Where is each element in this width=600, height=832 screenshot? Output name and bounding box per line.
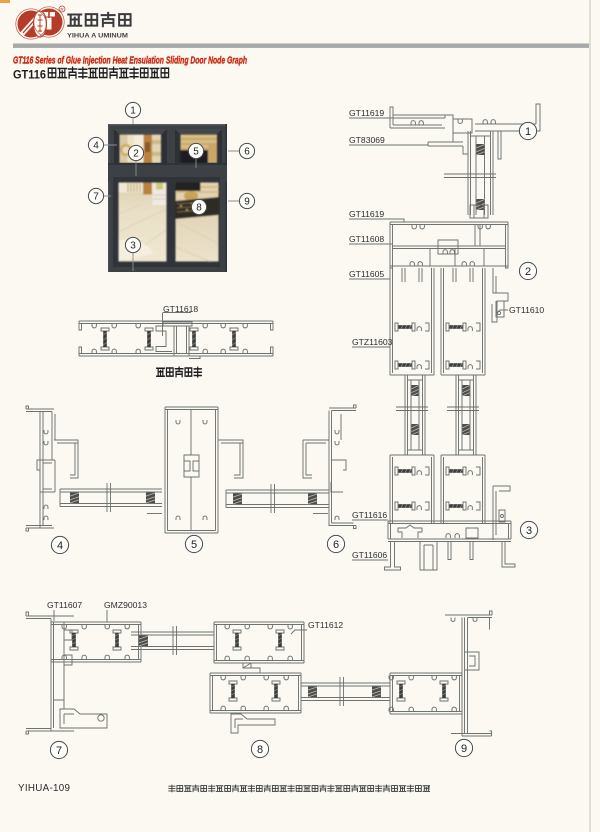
svg-text:GMZ90013: GMZ90013 — [104, 600, 147, 610]
svg-text:5: 5 — [191, 539, 197, 551]
svg-text:GT11619: GT11619 — [349, 209, 384, 219]
svg-text:GT116: GT116 — [13, 68, 46, 82]
svg-text:7: 7 — [56, 745, 62, 757]
svg-text:YIHUA-109: YIHUA-109 — [18, 783, 70, 794]
svg-text:GT11619: GT11619 — [349, 108, 384, 118]
svg-text:2: 2 — [133, 149, 139, 160]
svg-text:GT83069: GT83069 — [349, 135, 385, 145]
svg-text:7: 7 — [93, 192, 99, 203]
svg-text:!: ! — [428, 785, 430, 794]
svg-text:1: 1 — [130, 106, 136, 117]
svg-text:GT116 Series of Glue Injection: GT116 Series of Glue Injection Heat Ensu… — [13, 56, 247, 67]
svg-text:8: 8 — [196, 203, 202, 214]
svg-text:GT11610: GT11610 — [509, 305, 544, 315]
svg-text:3: 3 — [526, 525, 532, 537]
svg-text:1: 1 — [525, 126, 531, 138]
svg-text:YIHUA A UMINUM: YIHUA A UMINUM — [67, 33, 128, 40]
svg-text:2: 2 — [525, 266, 531, 278]
svg-text:GT11612: GT11612 — [308, 620, 343, 630]
svg-text:GT11605: GT11605 — [349, 269, 384, 279]
svg-text:GT11616: GT11616 — [352, 510, 387, 520]
svg-text:4: 4 — [57, 540, 63, 552]
svg-text:5: 5 — [193, 147, 199, 158]
svg-text:GT11608: GT11608 — [349, 234, 384, 244]
svg-text:9: 9 — [461, 743, 467, 755]
svg-text:6: 6 — [244, 147, 250, 158]
svg-text:GT11607: GT11607 — [47, 600, 82, 610]
svg-text:9: 9 — [244, 197, 250, 208]
svg-text:3: 3 — [130, 241, 136, 252]
svg-text:4: 4 — [93, 141, 99, 152]
svg-text:8: 8 — [257, 744, 263, 756]
svg-text:6: 6 — [333, 539, 339, 551]
svg-text:GT11606: GT11606 — [352, 550, 387, 560]
svg-text:GTZ11603: GTZ11603 — [352, 337, 393, 347]
